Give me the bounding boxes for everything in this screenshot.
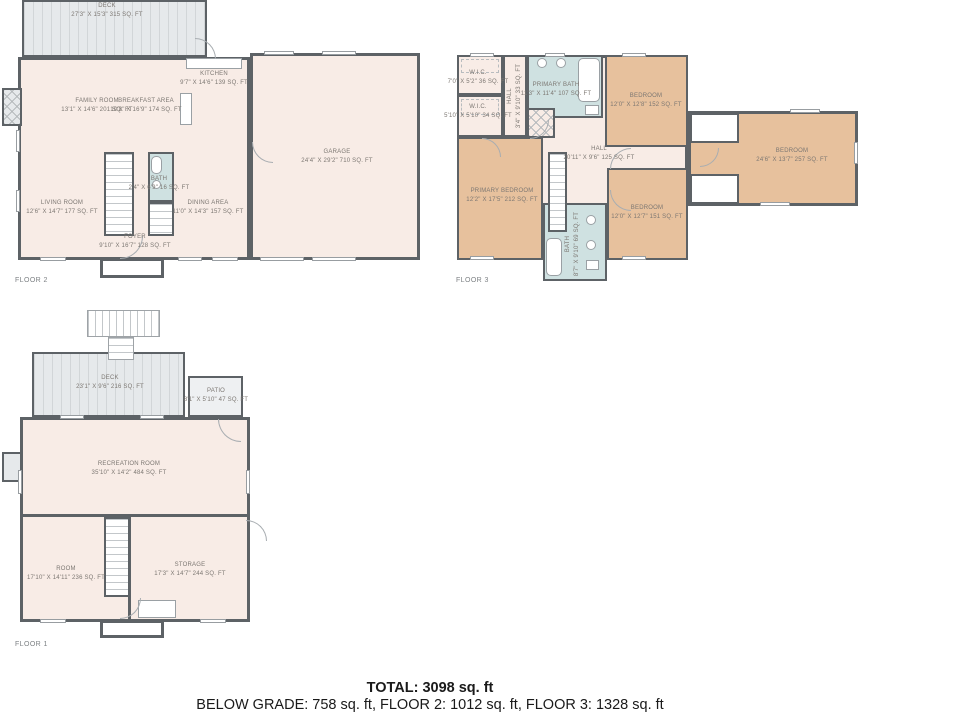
door-arc xyxy=(195,38,216,59)
room-label-bedroom-wing: BEDROOM24'6" X 13'7" 257 SQ. FT xyxy=(756,147,827,165)
utility-box xyxy=(138,600,176,618)
floor-3-caption: FLOOR 3 xyxy=(456,277,489,284)
primary-bath-sink xyxy=(537,58,547,68)
room-label-kitchen: KITCHEN9'7" X 14'6" 139 SQ. FT xyxy=(180,70,248,88)
total-area-text: TOTAL: 3098 sq. ft xyxy=(0,680,860,697)
floor-2-caption: FLOOR 2 xyxy=(15,277,48,284)
window xyxy=(40,257,66,261)
kitchen-island xyxy=(180,93,192,125)
window xyxy=(470,256,494,260)
bump-floor1 xyxy=(100,620,164,638)
window xyxy=(622,256,646,260)
window xyxy=(140,415,164,419)
room-label-recreation-room: RECREATION ROOM35'10" X 14'2" 484 SQ. FT xyxy=(92,460,167,478)
room-label-bath-f2: BATH2'4" X 6'9" 16 SQ. FT xyxy=(129,175,190,193)
room-label-deck-f1: DECK23'1" X 9'6" 216 SQ. FT xyxy=(76,374,144,392)
window xyxy=(760,202,790,206)
wing-closet-bottom xyxy=(690,174,739,204)
window xyxy=(854,142,858,164)
room-label-bedroom-bottom: BEDROOM12'0" X 12'7" 151 SQ. FT xyxy=(611,204,682,222)
stairs-floor2-lower xyxy=(148,202,174,236)
window xyxy=(212,257,238,261)
garage-door-opening xyxy=(260,257,304,261)
window xyxy=(322,51,356,55)
room-label-bedroom-top: BEDROOM12'0" X 12'8" 152 SQ. FT xyxy=(610,92,681,110)
window xyxy=(40,619,66,623)
wing-closet-top xyxy=(690,113,739,143)
window xyxy=(264,51,294,55)
room-label-dining-area: DINING AREA11'0" X 14'3" 157 SQ. FT xyxy=(173,199,244,217)
window xyxy=(246,470,250,494)
room-label-storage: STORAGE17'3" X 14'7" 244 SQ. FT xyxy=(154,561,225,579)
room-label-patio: PATIO8'1" X 5'10" 47 SQ. FT xyxy=(184,387,248,405)
bath-floor3-sink xyxy=(586,240,596,250)
room-label-wic-2: W.I.C.5'10" X 5'10" 34 SQ. FT xyxy=(444,103,512,121)
floor1-main-body xyxy=(20,417,250,622)
room-label-hall: HALL20'11" X 9'6" 125 SQ. FT xyxy=(564,145,635,163)
room-label-foyer: FOYER9'10" X 16'7" 128 SQ. FT xyxy=(99,233,170,251)
garage-door-opening xyxy=(312,257,356,261)
chimney-floor2 xyxy=(2,88,22,126)
bathtub-floor2 xyxy=(151,156,162,174)
bath-floor3-tub xyxy=(546,238,562,276)
window xyxy=(790,109,820,113)
room-label-room: ROOM17'10" X 14'11" 236 SQ. FT xyxy=(27,565,105,583)
window xyxy=(60,415,84,419)
deck-stairs-upper xyxy=(87,310,160,337)
window xyxy=(178,257,202,261)
room-label-bath-floor3: BATH8'7" X 9'10" 69 SQ. FT xyxy=(564,212,582,276)
floor-breakdown-text: BELOW GRADE: 758 sq. ft, FLOOR 2: 1012 s… xyxy=(0,697,860,714)
stairs-floor2 xyxy=(104,152,134,236)
room-label-primary-bath: PRIMARY BATH11'3" X 11'4" 107 SQ. FT xyxy=(521,81,592,99)
room-label-living-room: LIVING ROOM12'6" X 14'7" 177 SQ. FT xyxy=(26,199,97,217)
room-label-wic-1: W.I.C.7'0" X 5'2" 36 SQ. FT xyxy=(448,69,509,87)
bath-floor3-toilet xyxy=(586,260,599,270)
kitchen-counter xyxy=(186,58,242,69)
room-label-deck-f2: DECK27'3" X 15'3" 315 SQ. FT xyxy=(71,2,142,20)
window xyxy=(200,619,226,623)
room-label-breakfast-area: BREAKFAST AREA10'8" X 16'9" 174 SQ. FT xyxy=(110,97,181,115)
window xyxy=(470,53,494,57)
window xyxy=(545,53,565,57)
interior-wall-horizontal xyxy=(22,514,248,517)
window xyxy=(18,470,22,494)
porch-floor2 xyxy=(100,258,164,278)
floor-1-caption: FLOOR 1 xyxy=(15,641,48,648)
area-summary: TOTAL: 3098 sq. ft BELOW GRADE: 758 sq. … xyxy=(0,680,860,714)
stairs-floor1 xyxy=(104,517,130,597)
primary-bath-sink xyxy=(556,58,566,68)
window xyxy=(16,190,20,212)
door-arc xyxy=(246,520,267,541)
floor-plan-canvas: DECK27'3" X 15'3" 315 SQ. FT FAMILY ROOM… xyxy=(0,0,960,720)
deck-stairs-landing xyxy=(108,337,134,360)
room-label-primary-bedroom: PRIMARY BEDROOM12'2" X 17'5" 212 SQ. FT xyxy=(466,187,537,205)
window xyxy=(16,130,20,152)
primary-bath-toilet xyxy=(585,105,599,115)
window xyxy=(622,53,646,57)
bath-floor3-sink xyxy=(586,215,596,225)
room-label-garage: GARAGE24'4" X 29'2" 710 SQ. FT xyxy=(301,148,372,166)
